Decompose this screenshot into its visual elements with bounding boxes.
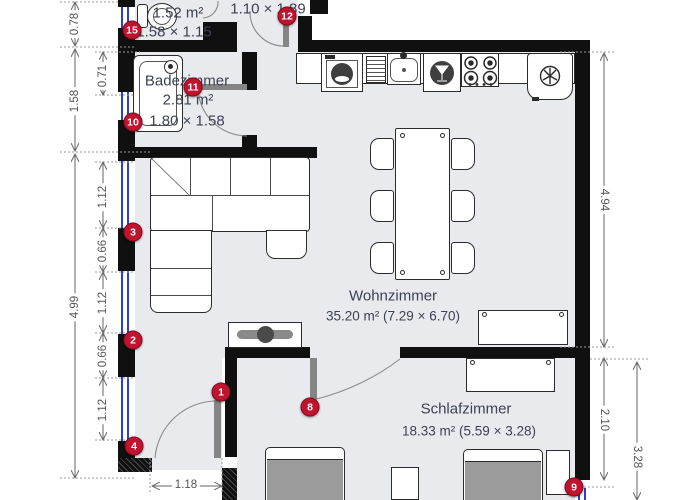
door-arcs xyxy=(155,1,400,458)
bedroom-size-label: 18.33 m² (5.59 × 3.28) xyxy=(402,424,536,439)
dim-3-28: 3.28 xyxy=(631,443,643,471)
stove-burners xyxy=(465,57,497,85)
dim-2-10: 2.10 xyxy=(598,406,610,434)
floor-plan: 1.52 m² 1.58 × 1.15 1.10 × 1.89 Badezimm… xyxy=(0,0,700,500)
dim-0-66-a: 0.66 xyxy=(97,237,109,265)
bedroom-name-label: Schlafzimmer xyxy=(421,401,512,418)
marker-9[interactable]: 9 xyxy=(565,478,584,497)
livingroom-name-label: Wohnzimmer xyxy=(349,288,437,305)
marker-3[interactable]: 3 xyxy=(124,223,143,242)
dim-1-12-c: 1.12 xyxy=(97,396,109,424)
dim-1-12-b: 1.12 xyxy=(97,289,109,317)
dim-1-18: 1.18 xyxy=(172,479,200,491)
marker-11[interactable]: 11 xyxy=(184,78,203,97)
dim-4-99: 4.99 xyxy=(69,293,81,321)
dim-1-12-a: 1.12 xyxy=(97,183,109,211)
marker-8[interactable]: 8 xyxy=(301,398,320,417)
marker-1[interactable]: 1 xyxy=(212,383,231,402)
marker-4[interactable]: 4 xyxy=(125,437,144,456)
wc-size-label: 1.58 × 1.15 xyxy=(136,24,211,41)
dim-0-78: 0.78 xyxy=(69,10,81,38)
dim-4-94: 4.94 xyxy=(598,186,610,214)
wc-area-label: 1.52 m² xyxy=(153,5,204,22)
dim-0-66-b: 0.66 xyxy=(97,342,109,370)
dim-0-71: 0.71 xyxy=(97,62,109,90)
fan-icon xyxy=(541,67,560,86)
marker-15[interactable]: 15 xyxy=(123,21,142,40)
marker-2[interactable]: 2 xyxy=(124,331,143,350)
marker-12[interactable]: 12 xyxy=(278,7,297,26)
bathroom-size-label: 1.80 × 1.58 xyxy=(149,113,224,130)
martini-glass-icon xyxy=(436,66,448,81)
livingroom-size-label: 35.20 m² (7.29 × 6.70) xyxy=(326,309,460,324)
marker-10[interactable]: 10 xyxy=(124,113,143,132)
dim-1-58: 1.58 xyxy=(69,87,81,115)
